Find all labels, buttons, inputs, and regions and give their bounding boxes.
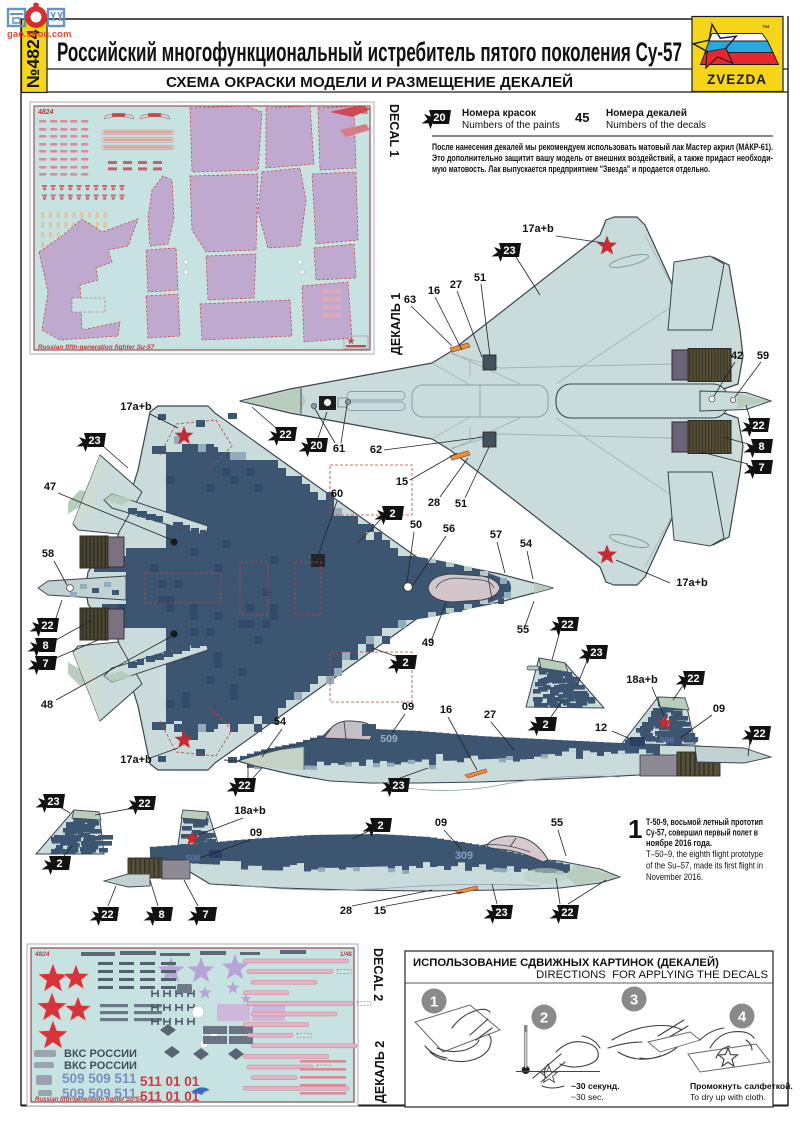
svg-text:ноябре 2016 года.: ноябре 2016 года. xyxy=(646,838,712,848)
svg-text:60: 60 xyxy=(331,488,343,500)
svg-text:54: 54 xyxy=(520,538,533,550)
svg-text:17a+b: 17a+b xyxy=(120,401,152,413)
svg-text:12: 12 xyxy=(595,722,607,734)
svg-text:59: 59 xyxy=(757,350,769,362)
svg-text:18a+b: 18a+b xyxy=(626,674,658,686)
svg-text:57: 57 xyxy=(490,529,502,541)
svg-text:2: 2 xyxy=(402,657,408,669)
svg-text:Russian fifth-generation fight: Russian fifth-generation fighter Su-57 xyxy=(38,344,155,351)
svg-text:63: 63 xyxy=(404,294,416,306)
svg-text:509 509 511: 509 509 511 xyxy=(62,1086,137,1101)
svg-text:Номера красок: Номера красок xyxy=(462,108,537,119)
svg-text:15: 15 xyxy=(396,476,408,488)
svg-text:2: 2 xyxy=(56,858,62,870)
svg-text:509: 509 xyxy=(380,733,398,745)
svg-text:ДЕКАЛЬ 2: ДЕКАЛЬ 2 xyxy=(373,1041,387,1103)
svg-text:22: 22 xyxy=(41,620,53,632)
svg-text:22: 22 xyxy=(753,728,765,740)
svg-text:22: 22 xyxy=(279,429,291,441)
svg-text:50: 50 xyxy=(410,519,422,531)
svg-text:November 2016.: November 2016. xyxy=(646,872,703,882)
svg-text:28: 28 xyxy=(428,497,440,509)
svg-text:28: 28 xyxy=(340,905,352,917)
svg-text:23: 23 xyxy=(47,796,59,808)
svg-text:51: 51 xyxy=(455,498,467,510)
svg-text:1/48: 1/48 xyxy=(340,952,352,958)
svg-text:2: 2 xyxy=(377,820,383,832)
svg-text:18a+b: 18a+b xyxy=(234,805,266,817)
svg-text:20: 20 xyxy=(433,112,445,124)
svg-text:45: 45 xyxy=(575,110,589,125)
svg-text:Российский многофункциональный: Российский многофункциональный истребите… xyxy=(57,37,682,67)
svg-text:09: 09 xyxy=(435,817,447,829)
svg-text:3: 3 xyxy=(630,992,638,1009)
svg-text:22: 22 xyxy=(561,619,573,631)
svg-text:Промокнуть салфеткой.: Промокнуть салфеткой. xyxy=(690,1081,793,1091)
svg-text:55: 55 xyxy=(517,624,529,636)
svg-text:27: 27 xyxy=(450,279,462,291)
svg-text:17a+b: 17a+b xyxy=(522,223,554,235)
svg-text:4: 4 xyxy=(738,1009,747,1026)
svg-text:8: 8 xyxy=(158,909,164,921)
svg-text:1: 1 xyxy=(430,994,438,1011)
svg-text:~30 sec.: ~30 sec. xyxy=(571,1092,604,1102)
svg-text:42: 42 xyxy=(731,350,743,362)
svg-text:22: 22 xyxy=(238,780,250,792)
svg-text:15: 15 xyxy=(374,905,386,917)
svg-text:7: 7 xyxy=(758,462,764,474)
svg-text:56: 56 xyxy=(443,523,455,535)
svg-text:2: 2 xyxy=(540,1010,548,1027)
svg-text:511 01 01: 511 01 01 xyxy=(140,1089,200,1104)
svg-text:Numbers of the paints: Numbers of the paints xyxy=(462,120,560,131)
svg-text:4824: 4824 xyxy=(34,951,50,958)
svg-text:2: 2 xyxy=(389,508,395,520)
svg-text:23: 23 xyxy=(88,435,100,447)
svg-text:23: 23 xyxy=(503,245,515,257)
svg-text:СХЕМА ОКРАСКИ МОДЕЛИ И РАЗМЕЩЕ: СХЕМА ОКРАСКИ МОДЕЛИ И РАЗМЕЩЕНИЕ ДЕКАЛЕ… xyxy=(166,73,573,91)
svg-text:62: 62 xyxy=(370,444,382,456)
svg-text:51: 51 xyxy=(474,272,486,284)
svg-text:DECAL 2: DECAL 2 xyxy=(371,948,385,1001)
svg-text:To dry up with cloth.: To dry up with cloth. xyxy=(690,1092,766,1102)
svg-text:61: 61 xyxy=(333,443,345,455)
svg-text:1: 1 xyxy=(628,814,642,844)
svg-text:09: 09 xyxy=(402,701,414,713)
svg-text:23: 23 xyxy=(590,647,602,659)
svg-text:После нанесения декалей мы рек: После нанесения декалей мы рекомендуем и… xyxy=(432,142,773,153)
svg-text:55: 55 xyxy=(551,817,563,829)
svg-text:54: 54 xyxy=(274,716,287,728)
svg-text:22: 22 xyxy=(752,420,764,432)
svg-text:DECAL 1: DECAL 1 xyxy=(387,104,401,157)
svg-text:22: 22 xyxy=(687,673,699,685)
svg-text:27: 27 xyxy=(484,709,496,721)
svg-text:of the Su–57, made its first f: of the Su–57, made its first flight in xyxy=(646,861,763,871)
svg-text:8: 8 xyxy=(42,640,48,652)
svg-text:Су-57, совершил первый полет в: Су-57, совершил первый полет в xyxy=(646,828,758,838)
svg-text:58: 58 xyxy=(42,548,54,560)
svg-text:7: 7 xyxy=(42,658,48,670)
svg-text:мую матовость. Лак выпускается: мую матовость. Лак выпускается предприят… xyxy=(432,164,710,175)
svg-text:2: 2 xyxy=(542,719,548,731)
svg-text:09: 09 xyxy=(713,703,725,715)
svg-text:509 509 511: 509 509 511 xyxy=(62,1071,137,1086)
svg-text:DIRECTIONS FOR APPLYING THE D: DIRECTIONS FOR APPLYING THE DECALS xyxy=(536,969,768,981)
svg-text:508: 508 xyxy=(186,853,200,863)
svg-text:48: 48 xyxy=(41,699,53,711)
svg-text:16: 16 xyxy=(440,704,452,716)
svg-text:17a+b: 17a+b xyxy=(676,577,708,589)
svg-text:T–50–9, the eighth flight prot: T–50–9, the eighth flight prototype xyxy=(646,849,763,859)
svg-text:17a+b: 17a+b xyxy=(120,754,152,766)
svg-text:23: 23 xyxy=(495,907,507,919)
svg-text:ZVEZDA: ZVEZDA xyxy=(707,72,767,87)
svg-text:09: 09 xyxy=(250,827,262,839)
svg-text:ДЕКАЛЬ 1: ДЕКАЛЬ 1 xyxy=(389,293,403,355)
svg-text:22: 22 xyxy=(101,909,113,921)
svg-text:™: ™ xyxy=(762,24,770,33)
svg-text:8: 8 xyxy=(758,441,764,453)
svg-text:309: 309 xyxy=(455,850,473,862)
svg-text:ВКС РОССИИ: ВКС РОССИИ xyxy=(64,1048,137,1060)
svg-text:22: 22 xyxy=(561,907,573,919)
svg-text:4824: 4824 xyxy=(37,109,54,116)
svg-text:22: 22 xyxy=(138,798,150,810)
svg-text:Это дополнительно защитит вашу: Это дополнительно защитит вашу модель от… xyxy=(432,153,773,164)
svg-text:47: 47 xyxy=(44,481,56,493)
svg-text:506: 506 xyxy=(660,735,674,745)
svg-text:Numbers of the decals: Numbers of the decals xyxy=(606,120,706,131)
svg-text:Номера декалей: Номера декалей xyxy=(606,108,687,119)
svg-text:~30 секунд.: ~30 секунд. xyxy=(571,1081,620,1091)
svg-text:Т-50-9, восьмой летный прототи: Т-50-9, восьмой летный прототип xyxy=(646,817,763,827)
svg-text:511 01 01: 511 01 01 xyxy=(140,1074,200,1089)
svg-text:16: 16 xyxy=(428,285,440,297)
svg-text:ИСПОЛЬЗОВАНИЕ СДВИЖНЫХ КАРТИНО: ИСПОЛЬЗОВАНИЕ СДВИЖНЫХ КАРТИНОК (ДЕКАЛЕЙ… xyxy=(413,956,719,969)
svg-text:20: 20 xyxy=(310,440,322,452)
svg-text:23: 23 xyxy=(392,780,404,792)
svg-text:7: 7 xyxy=(202,909,208,921)
